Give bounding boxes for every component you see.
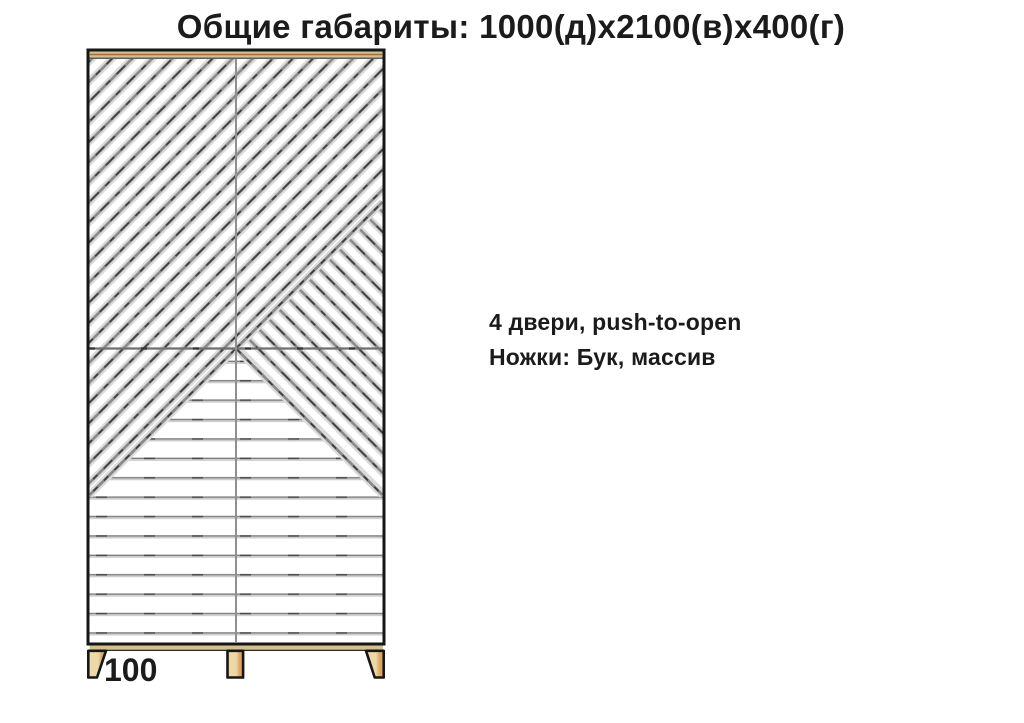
legs-height-label: 100 <box>104 652 157 688</box>
spec-line-legs: Ножки: Бук, массив <box>489 344 716 370</box>
drawing-page: Общие габариты: 1000(д)х2100(в)х400(г) <box>0 0 1024 723</box>
spec-line-doors: 4 двери, push-to-open <box>489 309 741 335</box>
furniture-drawing: Общие габариты: 1000(д)х2100(в)х400(г) <box>0 0 1024 723</box>
wardrobe-front-view: 100 <box>88 50 384 688</box>
leg-center <box>228 651 244 678</box>
wardrobe-top-edge <box>89 52 383 59</box>
page-title: Общие габариты: 1000(д)х2100(в)х400(г) <box>177 8 845 45</box>
